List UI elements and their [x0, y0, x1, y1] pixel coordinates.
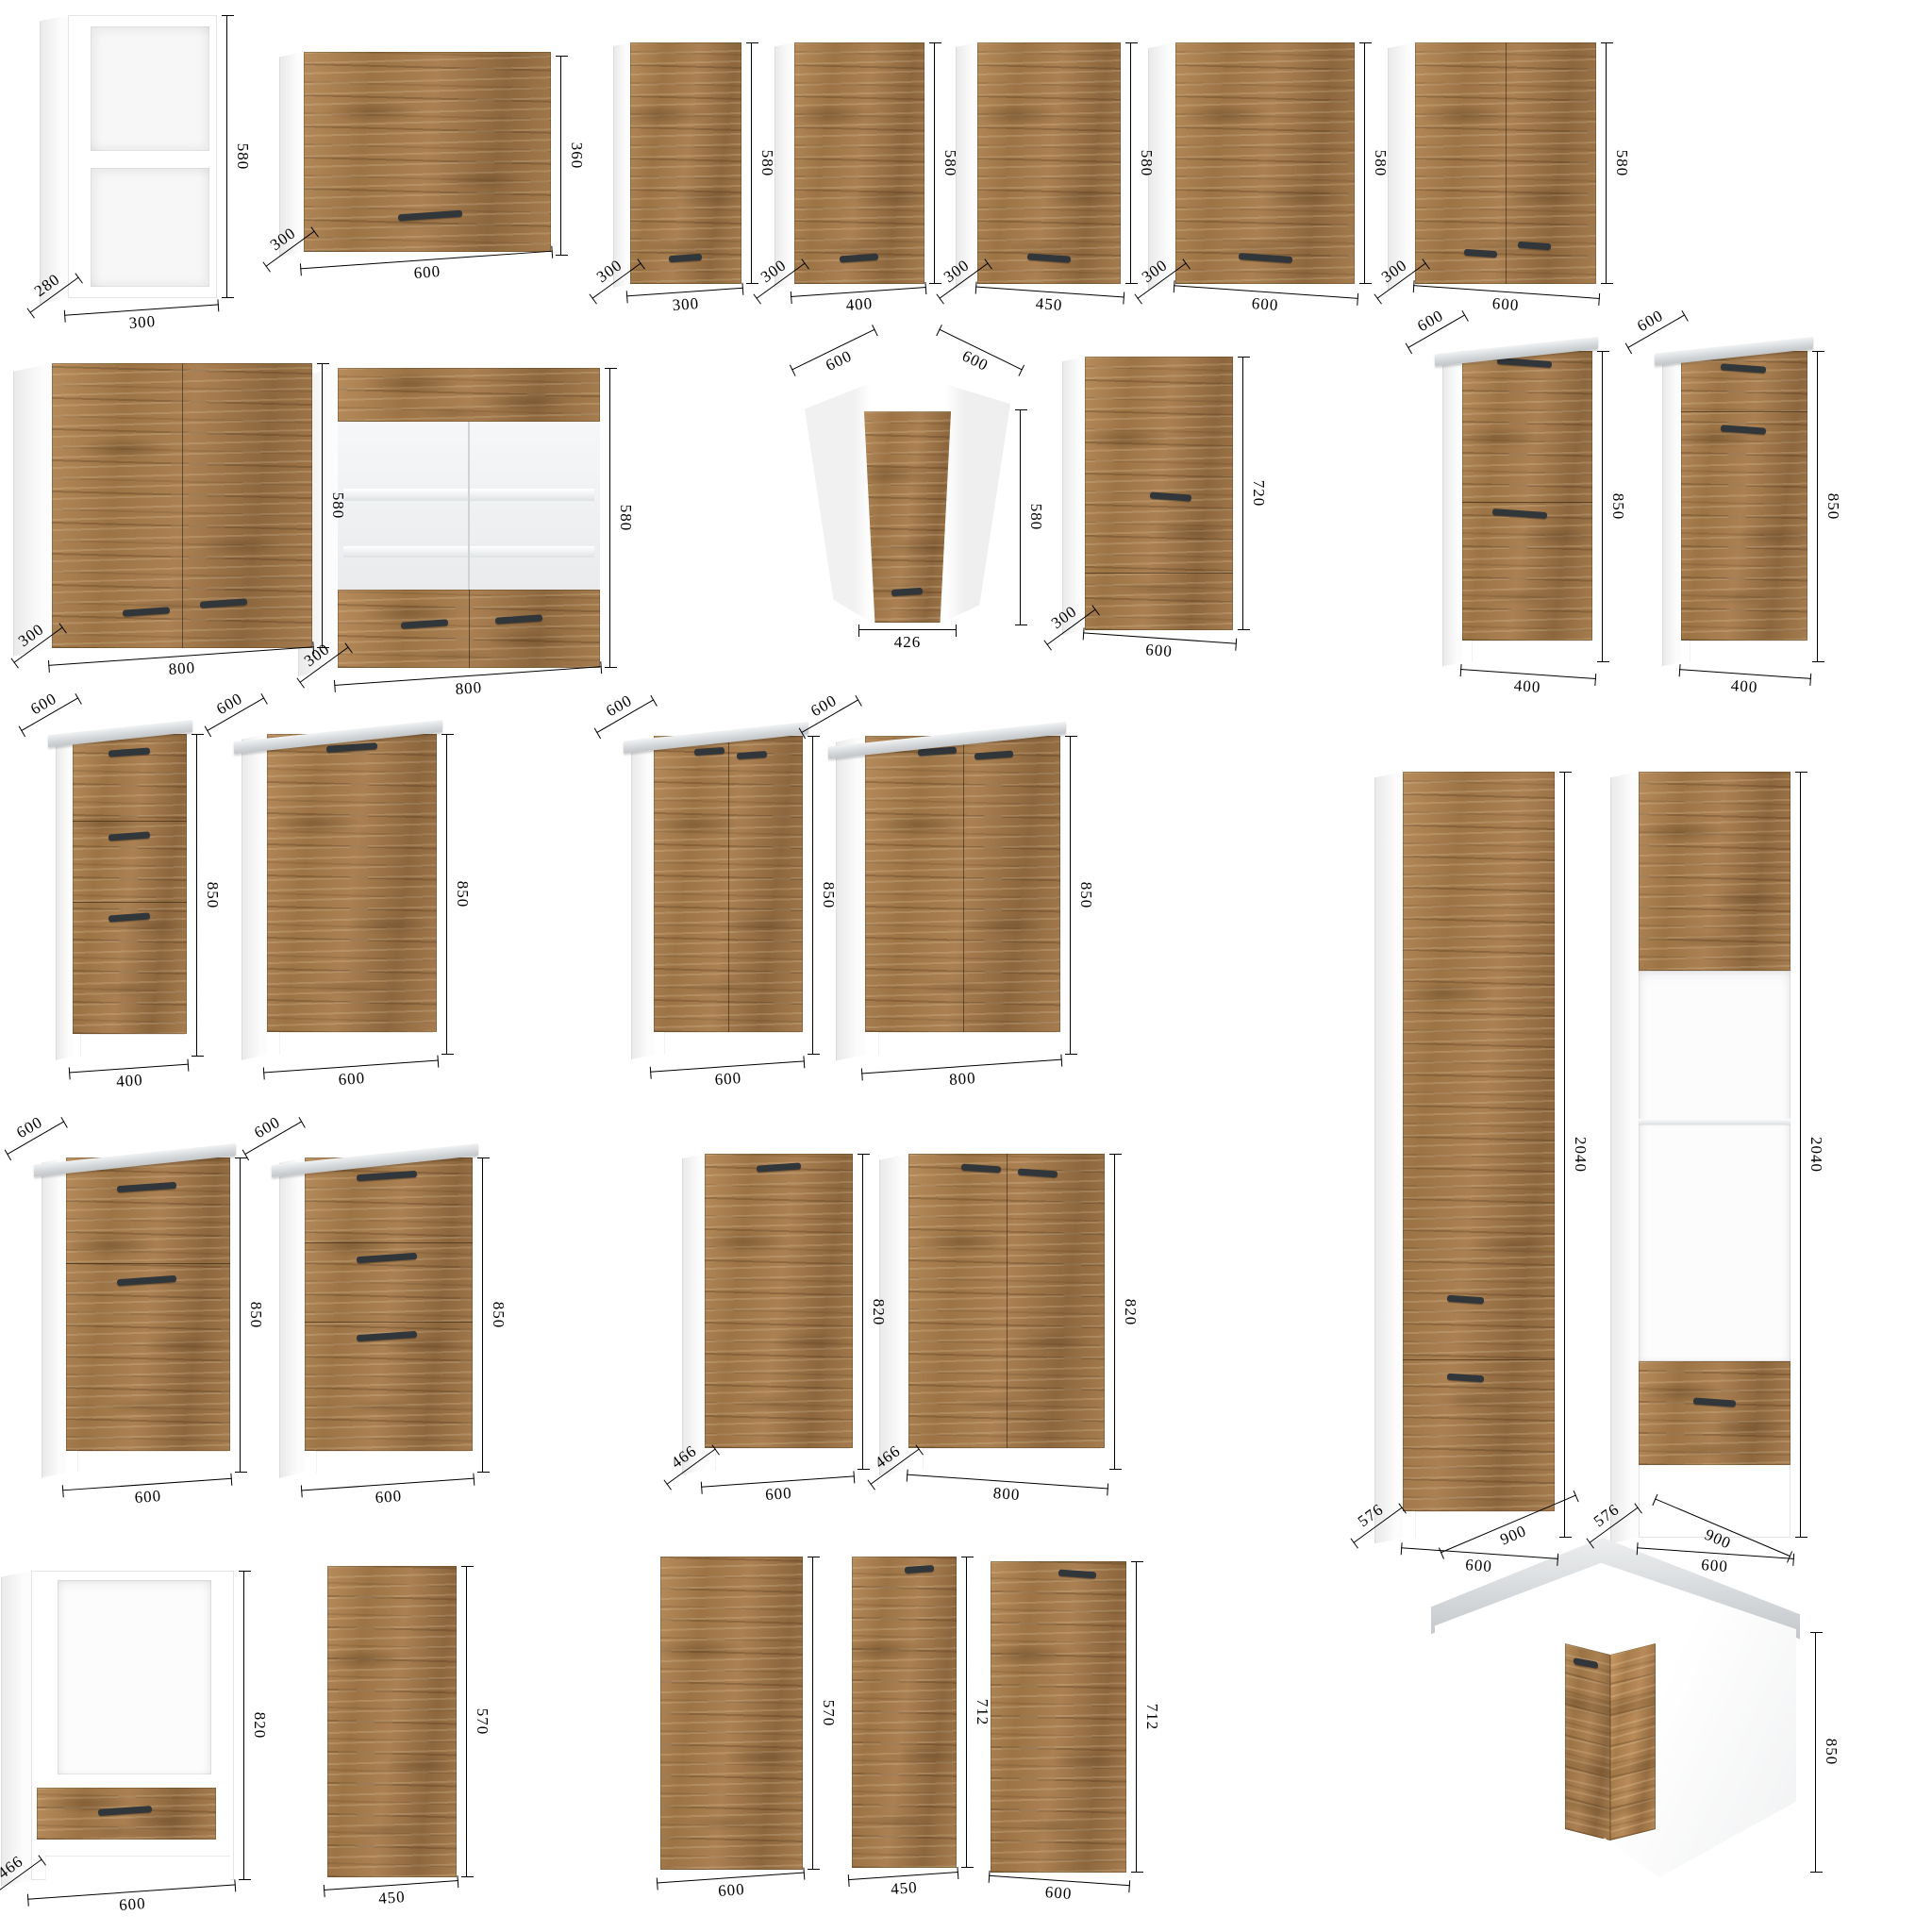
door-seam [1007, 1154, 1008, 1448]
unit-base-cabinet-800-2door[interactable]: 850800600 [865, 736, 1060, 1055]
unit-open-shelf-unit-300[interactable]: 580300280 [68, 15, 217, 298]
dim-height-label: 720 [1249, 480, 1268, 508]
cabinet-side-panel [1610, 772, 1639, 1543]
door-handle-icon [1150, 491, 1191, 501]
dim-height-label: 712 [973, 1699, 991, 1726]
dimension-height: 720 [1242, 357, 1274, 630]
dim-width-label: 800 [906, 1478, 1108, 1511]
dimension-line [1130, 42, 1131, 284]
dim-height-label: 580 [1137, 150, 1156, 177]
kitchen-cabinet-catalog: 5803002803606003005803003005804003005804… [0, 0, 1932, 1932]
dim-height-label: 580 [1612, 150, 1631, 177]
dimension-width: 600 [1172, 285, 1358, 326]
unit-front-panel-600x712[interactable]: 712600 [991, 1561, 1126, 1873]
unit-base-cabinet-600-3drawers[interactable]: 850600600 [305, 1158, 473, 1473]
dim-height-label: 820 [1121, 1298, 1140, 1325]
dim-height-label: 580 [941, 150, 959, 177]
dimension-line [1602, 351, 1603, 662]
dimension-width: 800 [334, 666, 603, 713]
door-handle-icon [1497, 358, 1552, 368]
door-handle-icon [904, 1565, 933, 1574]
door-handle-icon [1058, 1569, 1097, 1578]
corner-cabinet-body [1435, 1563, 1796, 1894]
dim-height-label: 820 [250, 1712, 269, 1740]
door-handle-icon [200, 598, 247, 608]
dimension-height: 850 [240, 1158, 272, 1473]
appliance-niche [1639, 971, 1790, 1361]
cabinet-front [1415, 42, 1596, 284]
dimension-line [243, 1571, 244, 1880]
dim-height-label: 570 [819, 1700, 838, 1727]
cabinet-front [908, 1154, 1105, 1448]
door-handle-icon [757, 1162, 801, 1172]
cabinet-side-panel [279, 1158, 305, 1478]
dimension-line [812, 736, 813, 1055]
cabinet-front [73, 734, 187, 1034]
dimension-line [466, 1566, 467, 1877]
cabinet-side-panel [1374, 772, 1403, 1543]
dimension-height: 820 [862, 1154, 894, 1470]
door-seam [305, 1322, 473, 1323]
unit-base-cabinet-600x820-door[interactable]: 820600466 [705, 1154, 853, 1470]
dimension-width: 600 [62, 1478, 234, 1518]
door-handle-icon [1464, 249, 1497, 258]
dimension-line [196, 734, 197, 1057]
cabinet-front [705, 1154, 853, 1448]
door-handle-icon [974, 751, 1014, 760]
plinth [1690, 641, 1805, 662]
plinth [664, 1032, 800, 1055]
cabinet-side-panel [631, 736, 654, 1059]
dimension-width: 600 [657, 1873, 807, 1911]
dim-width-label: 600 [1173, 289, 1358, 321]
plinth [279, 1032, 434, 1055]
unit-wall-cabinet-450x580[interactable]: 580450300 [977, 42, 1121, 284]
dimension-line [1800, 772, 1801, 1538]
dimension-height: 820 [1114, 1154, 1146, 1470]
dim-height-label: 850 [203, 882, 222, 909]
door-handle-icon [1492, 508, 1547, 519]
cabinet-front [977, 42, 1121, 284]
door-seam [73, 902, 187, 903]
dimension-width: 300 [64, 304, 221, 342]
dim-height-label: 850 [453, 881, 472, 908]
door-handle-icon [108, 831, 149, 841]
dimension-width: 400 [1458, 669, 1596, 707]
door-handle-icon [1446, 1295, 1483, 1305]
dimension-depth-top: 600 [196, 679, 266, 734]
door-handle-icon [669, 254, 703, 262]
tall-bottom-drawer [1639, 1361, 1790, 1465]
dimension-width: 400 [69, 1064, 191, 1101]
unit-wall-cabinet-300x580[interactable]: 580300300 [630, 42, 741, 284]
dimension-width: 600 [650, 1060, 807, 1099]
cabinet-front [660, 1557, 803, 1870]
display-top-panel [338, 368, 600, 422]
unit-front-panel-450x712[interactable]: 712450 [852, 1557, 957, 1868]
dimension-line [560, 56, 561, 256]
dimension-height: 850 [446, 734, 478, 1055]
housing-drawer [37, 1788, 215, 1840]
dimension-depth-top: 600 [1617, 296, 1687, 351]
dim-width-label: 600 [62, 1482, 233, 1513]
unit-tall-cabinet-600x2040[interactable]: 2040600576 [1403, 772, 1555, 1538]
plinth [878, 1032, 1056, 1055]
dimension-line [322, 363, 323, 648]
door-seam [728, 736, 729, 1032]
door-handle-icon [326, 742, 377, 753]
door-handle-icon [1238, 253, 1291, 263]
door-handle-icon [122, 607, 169, 616]
cabinet-front [1403, 772, 1555, 1511]
dimension-width: 450 [974, 287, 1124, 325]
cabinet-carcass [31, 1571, 234, 1880]
unit-base-cabinet-600-2door[interactable]: 850600600 [654, 736, 803, 1055]
door-handle-icon [357, 1331, 417, 1341]
dimension-line [1114, 1154, 1115, 1470]
dimension-height: 580 [1020, 409, 1052, 626]
unit-wall-cabinet-600x720[interactable]: 720600300 [1085, 357, 1233, 630]
dimension-width: 800 [48, 646, 315, 693]
dimension-height: 820 [243, 1571, 275, 1880]
cabinet-front [1175, 42, 1355, 284]
door-handle-icon [1720, 364, 1766, 374]
dimension-width: 600 [987, 1875, 1130, 1913]
dimension-width: 800 [905, 1474, 1108, 1517]
dimension-width: 400 [1677, 669, 1811, 707]
dimension-height: 570 [466, 1566, 498, 1877]
door-handle-icon [737, 751, 767, 759]
cabinet-front [1681, 351, 1807, 641]
corner-cabinet-body [805, 371, 1010, 625]
cabinet-front [852, 1557, 957, 1868]
dim-height-label: 850 [1824, 493, 1842, 521]
dimension-line [446, 734, 447, 1055]
plinth [923, 1448, 1101, 1470]
dimension-line [1020, 409, 1021, 626]
plinth [715, 1448, 850, 1470]
dimension-line [1606, 42, 1607, 284]
dim-width-label: 450 [848, 1875, 959, 1902]
door-seam [1681, 411, 1807, 412]
plinth [80, 1034, 184, 1057]
dimension-height: 850 [1817, 351, 1849, 662]
door-handle-icon [961, 1164, 1001, 1174]
dimension-width: 600 [27, 1884, 238, 1926]
plinth [77, 1451, 226, 1473]
plinth [45, 1856, 230, 1880]
dim-height-label: 2040 [1807, 1137, 1825, 1173]
dimension-height: 580 [1130, 42, 1162, 284]
door-handle-icon [840, 254, 879, 263]
door-seam [305, 1242, 473, 1243]
cabinet-side-panel [56, 734, 73, 1060]
cabinet-front [338, 368, 600, 668]
dim-height-label: 580 [1371, 150, 1390, 177]
door-handle-icon [891, 588, 923, 596]
door-seam [469, 590, 470, 668]
tall-top-door [1639, 772, 1790, 971]
dimension-width: 450 [324, 1880, 460, 1918]
cabinet-front [1462, 351, 1592, 641]
dimension-height: 850 [1815, 1632, 1847, 1873]
unit-tall-oven-cabinet-600x2040[interactable]: 2040600576 [1639, 772, 1790, 1538]
niche-shelf [1639, 1119, 1790, 1124]
dimension-line [1817, 351, 1818, 662]
dimension-height: 850 [196, 734, 228, 1057]
dimension-height: 360 [560, 56, 592, 256]
plinth [1472, 641, 1591, 662]
door-seam [1506, 42, 1507, 284]
unit-wall-cabinet-400x580[interactable]: 580400300 [794, 42, 924, 284]
dimension-height: 570 [812, 1557, 844, 1870]
dim-width-label: 600 [301, 1482, 475, 1513]
dimension-height: 2040 [1564, 772, 1596, 1538]
dimension-line [1242, 357, 1243, 630]
unit-base-cabinet-400-drawer-door[interactable]: 850400600 [1681, 351, 1807, 662]
glass-divider [468, 422, 470, 590]
cabinet-front [52, 363, 312, 648]
dimension-depth-top: 600 [10, 679, 80, 734]
dimension-width: 600 [263, 1060, 441, 1101]
corner-door-right [1610, 1643, 1656, 1840]
dimension-height: 2040 [1800, 772, 1832, 1538]
dimension-line [966, 1557, 967, 1868]
door-handle-icon [693, 746, 724, 755]
dim-width-label: 600 [28, 1888, 238, 1921]
door-handle-icon [1693, 1397, 1736, 1407]
dim-width-label: 426 [858, 633, 958, 652]
door-seam [1462, 502, 1592, 503]
cabinet-front [305, 1158, 473, 1451]
door-handle-icon [1720, 425, 1766, 434]
dimension-height: 850 [1070, 736, 1102, 1055]
door-handle-icon [1027, 254, 1071, 263]
unit-oven-housing-cabinet-600[interactable]: 820600466 [31, 1571, 234, 1880]
cabinet-front [327, 1566, 457, 1877]
dimension-height: 580 [322, 363, 354, 648]
door-seam [1085, 573, 1233, 574]
door-handle-icon [1446, 1373, 1483, 1382]
dimension-depth-top: 600 [0, 1103, 66, 1158]
dimension-height: 712 [966, 1557, 998, 1868]
door-handle-icon [108, 747, 149, 757]
dimension-height: 712 [1136, 1561, 1168, 1873]
unit-front-panel-450x570[interactable]: 570450 [327, 1566, 457, 1877]
door-handle-icon [1518, 241, 1551, 250]
dimension-top-left: 600 [791, 327, 885, 390]
door-seam [182, 363, 183, 648]
dimension-width: 600 [301, 1478, 476, 1519]
dim-height-label: 580 [233, 143, 252, 171]
dimension-line [482, 1158, 483, 1473]
cabinet-carcass [68, 15, 217, 298]
cabinet-front [304, 52, 551, 252]
dim-height-label: 850 [1076, 882, 1095, 909]
oven-niche [58, 1580, 211, 1775]
dimension-height: 580 [1364, 42, 1396, 284]
dimension-depth-top: 600 [234, 1103, 304, 1158]
dimension-width: 450 [848, 1872, 960, 1907]
dim-height-label: 850 [1822, 1739, 1840, 1766]
dimension-height: 580 [226, 15, 258, 298]
dim-width-label: 600 [263, 1064, 440, 1095]
dim-height-label: 570 [473, 1708, 491, 1736]
dimension-width: 300 [626, 288, 745, 325]
dim-width-label: 800 [861, 1063, 1063, 1096]
door-handle-icon [357, 1170, 417, 1180]
dim-height-label: 850 [489, 1302, 508, 1329]
door-seam [963, 736, 964, 1032]
unit-wall-display-cabinet-800x580[interactable]: 580800300 [338, 368, 600, 668]
dimension-line [812, 1557, 813, 1870]
unit-base-cabinet-400-3drawers[interactable]: 850400600 [73, 734, 187, 1057]
cabinet-side-panel [1442, 351, 1462, 666]
dimension-top-right: 600 [929, 327, 1024, 390]
cabinet-side-panel [1, 1571, 31, 1887]
cabinet-front [991, 1561, 1126, 1873]
dim-height-label: 850 [1608, 493, 1627, 521]
unit-wall-flap-cabinet-600x360[interactable]: 360600300 [304, 52, 551, 252]
door-handle-icon [1573, 1657, 1598, 1669]
cabinet-side-panel [682, 1154, 705, 1474]
unit-base-cabinet-600-door[interactable]: 850600600 [267, 734, 437, 1055]
dim-height-label: 580 [328, 492, 347, 520]
dimension-line [858, 629, 958, 630]
unit-front-panel-600x570[interactable]: 570600 [660, 1557, 803, 1870]
dim-height-label: 850 [246, 1302, 265, 1329]
unit-base-cabinet-800x820-2door[interactable]: 820800466 [908, 1154, 1105, 1470]
dim-height-label: 2040 [1571, 1137, 1590, 1173]
cabinet-front [794, 42, 924, 284]
dimension-line [862, 1154, 863, 1470]
door-handle-icon [98, 1806, 152, 1816]
dimension-line [751, 42, 752, 284]
door-seam [1403, 1359, 1555, 1360]
cabinet-front [862, 411, 953, 623]
dimension-width: 800 [861, 1059, 1064, 1102]
dimension-height: 850 [812, 736, 844, 1055]
dimension-width: 600 [1081, 632, 1237, 671]
dimension-line [226, 15, 227, 298]
dimension-height: 580 [751, 42, 783, 284]
dimension-line [1364, 42, 1365, 284]
open-compartment [91, 168, 209, 287]
dim-height-label: 580 [758, 150, 776, 177]
cabinet-front [630, 42, 741, 284]
dimension-width: 600 [701, 1475, 857, 1514]
door-handle-icon [108, 912, 149, 922]
display-open-shelves [338, 422, 600, 590]
corner-door-left [1565, 1643, 1610, 1840]
cabinet-front [654, 736, 803, 1032]
cabinet-side-panel [241, 734, 267, 1060]
dimension-line [934, 42, 935, 284]
cabinet-front [1085, 357, 1233, 630]
unit-corner-wall-cabinet-600x600[interactable]: 580426600600 [805, 371, 1010, 625]
door-handle-icon [117, 1182, 176, 1192]
door-handle-icon [397, 209, 461, 221]
dimension-width: 400 [791, 287, 928, 325]
dimension-width: 426 [858, 629, 958, 658]
unit-wall-cabinet-2door-600x580[interactable]: 580600300 [1415, 42, 1596, 284]
dim-height-label: 580 [616, 505, 635, 532]
dimension-width: 600 [300, 251, 554, 297]
door-handle-icon [117, 1275, 176, 1286]
cabinet-side-panel [42, 1158, 66, 1478]
dim-height-label: 580 [1026, 504, 1045, 531]
cabinet-front [267, 734, 437, 1032]
display-bottom-flaps [338, 590, 600, 668]
dimension-line [240, 1158, 241, 1473]
dim-height-label: 360 [567, 142, 586, 170]
door-seam [73, 821, 187, 822]
dimension-height: 580 [1606, 42, 1638, 284]
dimension-height: 850 [482, 1158, 514, 1473]
dim-height-label: 820 [869, 1298, 888, 1325]
dimension-line [609, 368, 610, 668]
dimension-height: 850 [1602, 351, 1634, 662]
dim-height-label: 712 [1142, 1704, 1161, 1731]
unit-wall-cabinet-2door-800x580[interactable]: 580800300 [52, 363, 312, 648]
dimension-height: 580 [934, 42, 966, 284]
unit-wall-cabinet-600x580[interactable]: 580600300 [1175, 42, 1355, 284]
unit-base-cabinet-400-two-doors[interactable]: 850400600 [1462, 351, 1592, 662]
cabinet-front [66, 1158, 230, 1451]
cabinet-front [865, 736, 1060, 1032]
dimension-line [1136, 1561, 1137, 1873]
dimension-line [1564, 772, 1565, 1538]
unit-base-cabinet-600-drawer-door[interactable]: 850600600 [66, 1158, 230, 1473]
open-compartment [91, 26, 209, 151]
dimension-height: 580 [609, 368, 641, 668]
door-seam [66, 1263, 230, 1264]
door-handle-icon [357, 1252, 417, 1262]
door-handle-icon [1018, 1169, 1058, 1178]
unit-corner-base-cabinet-900x900[interactable]: 850900900 [1431, 1530, 1800, 1894]
cabinet-side-panel [1662, 351, 1681, 666]
dimension-line [1815, 1632, 1816, 1873]
dimension-depth-top: 600 [791, 681, 860, 736]
door-handle-icon [495, 615, 542, 625]
door-handle-icon [401, 620, 448, 629]
cabinet-front [1639, 772, 1790, 1538]
dimension-line [1070, 736, 1071, 1055]
plinth [316, 1451, 469, 1473]
dim-height-label: 850 [819, 882, 838, 909]
